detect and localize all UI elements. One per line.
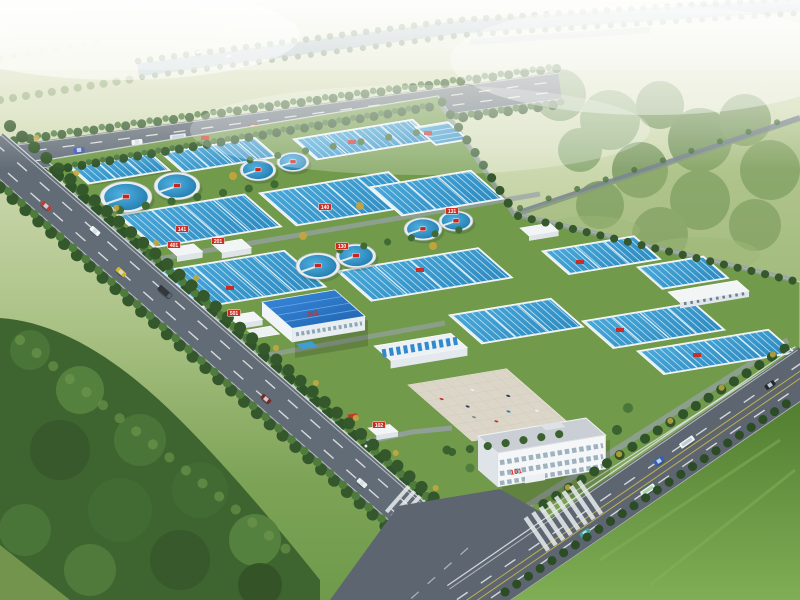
unit-tag: 141 [176,226,189,233]
svg-text:102: 102 [375,423,384,429]
autumn-tree [356,202,364,210]
unit-tag-small [416,268,424,272]
svg-text:130: 130 [338,244,347,250]
haze-overlay [0,0,800,175]
autumn-tree [229,172,237,180]
unit-tag: 140 [319,204,332,211]
unit-tag: 131 [446,208,459,215]
unit-tag: 130 [336,243,349,250]
svg-text:140: 140 [321,205,330,211]
unit-tag-small [693,353,701,357]
unit-tag: 501 [228,310,241,317]
unit-tag-small [616,328,624,332]
autumn-tree [299,232,307,240]
unit-tag: 102 [373,422,386,429]
svg-text:401: 401 [170,243,179,249]
unit-tag: 401 [168,242,181,249]
autumn-tree [429,242,437,250]
svg-text:201: 201 [214,239,223,245]
unit-tag-small [576,260,584,264]
scene-aerial-rendering: 141 140 130 131 401 201 501 102 301 101 [0,0,800,600]
aerial-rendering-water-treatment-plant: 141 140 130 131 401 201 501 102 301 101 [0,0,800,600]
unit-tag: 201 [212,238,225,245]
unit-tag-small [226,286,234,290]
svg-text:501: 501 [230,311,239,317]
svg-text:141: 141 [178,227,187,233]
svg-text:131: 131 [448,209,457,215]
